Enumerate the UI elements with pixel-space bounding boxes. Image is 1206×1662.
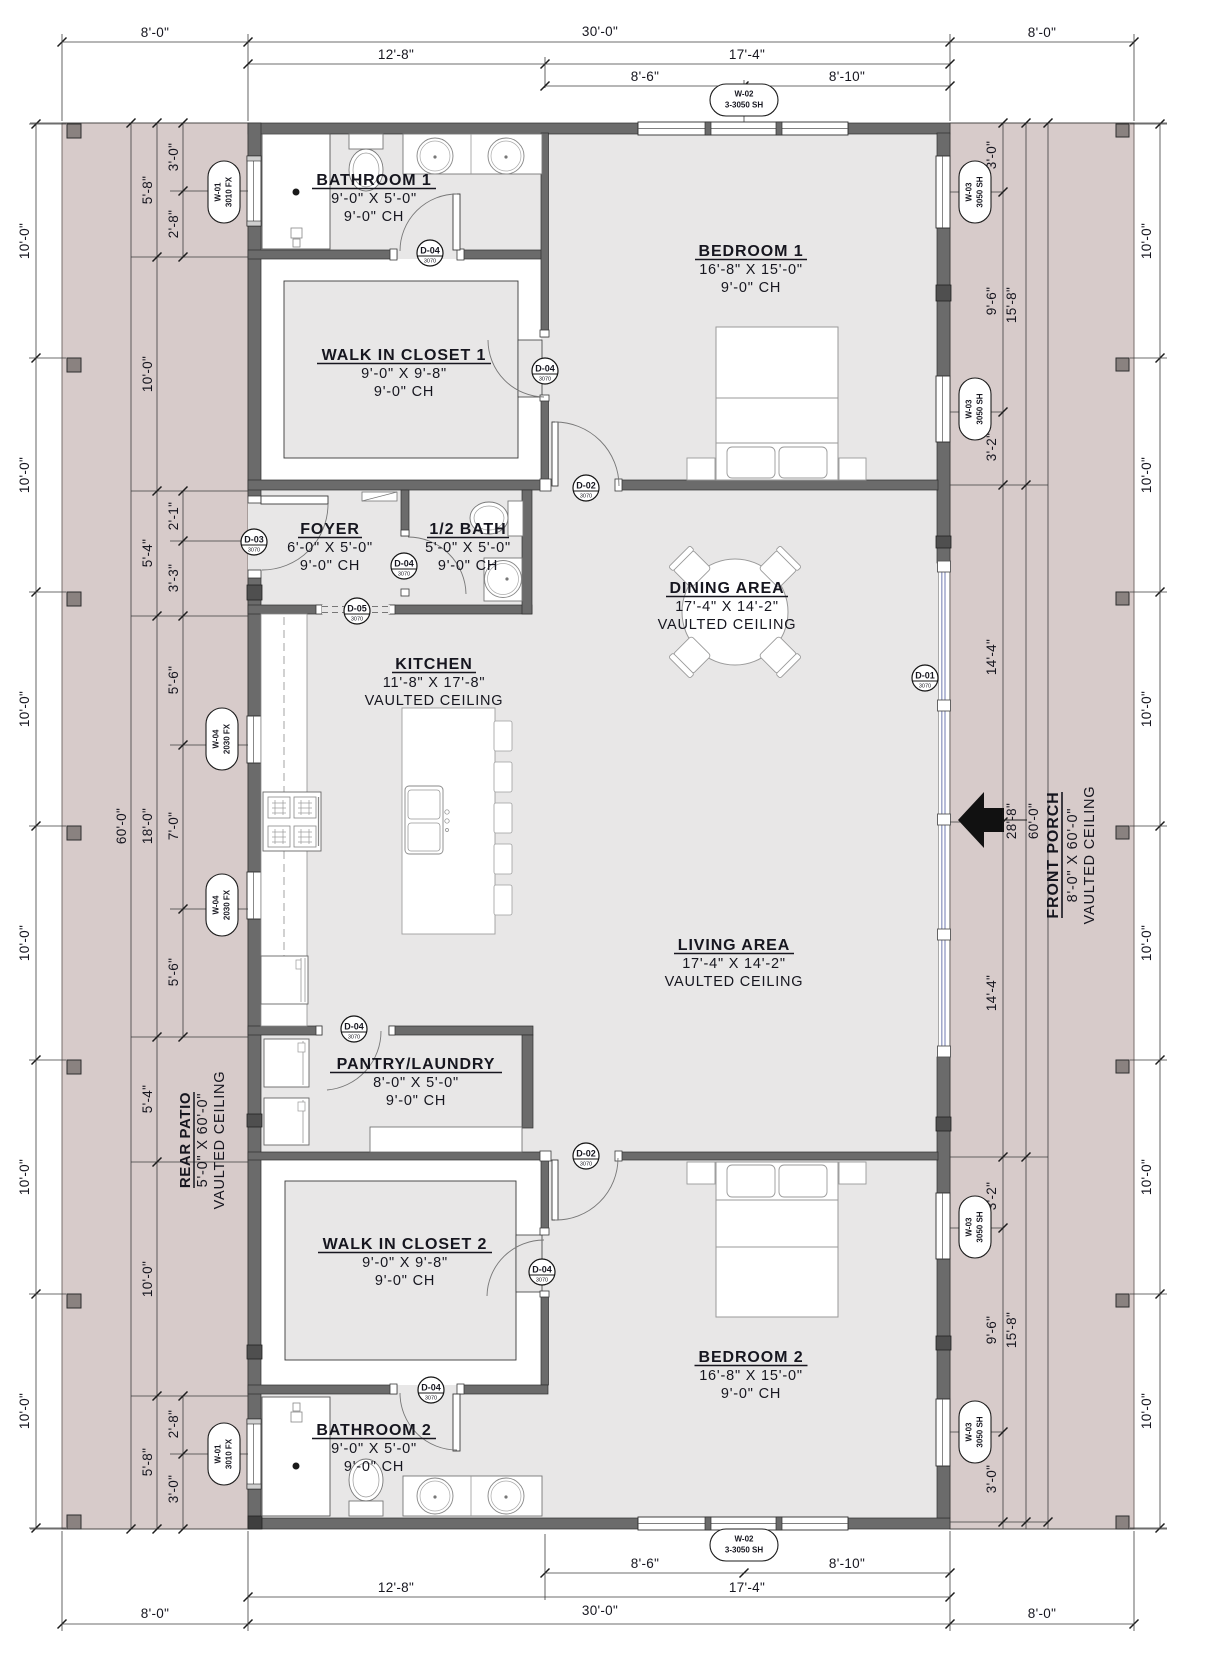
svg-text:8'-0": 8'-0" [141,1606,169,1621]
svg-text:3'-0": 3'-0" [166,143,181,171]
svg-text:FOYER: FOYER [300,521,360,538]
svg-text:BATHROOM 1: BATHROOM 1 [316,172,431,189]
svg-text:10'-0": 10'-0" [17,1159,32,1195]
svg-text:2'-8": 2'-8" [166,1410,181,1438]
svg-text:10'-0": 10'-0" [17,691,32,727]
svg-text:8'-0": 8'-0" [1028,1606,1056,1621]
svg-text:14'-4": 14'-4" [984,975,999,1011]
svg-text:3070: 3070 [398,572,410,578]
svg-text:3'-0": 3'-0" [166,1475,181,1503]
svg-text:9'-0" CH: 9'-0" CH [438,558,498,574]
svg-text:D-02: D-02 [576,481,596,491]
svg-text:3050 SH: 3050 SH [976,1416,985,1447]
svg-text:VAULTED CEILING: VAULTED CEILING [665,974,804,990]
svg-text:W-02: W-02 [735,1535,755,1544]
svg-text:D-03: D-03 [244,535,264,545]
svg-text:8'-10": 8'-10" [829,1556,865,1571]
svg-text:3050 SH: 3050 SH [976,1211,985,1242]
svg-text:WALK IN CLOSET 1: WALK IN CLOSET 1 [322,347,487,364]
svg-text:LIVING AREA: LIVING AREA [678,937,790,954]
svg-text:9'-0" CH: 9'-0" CH [721,1386,781,1402]
svg-text:8'-0": 8'-0" [1028,25,1056,40]
svg-text:3070: 3070 [539,377,551,383]
svg-text:3050 SH: 3050 SH [976,176,985,207]
svg-text:15'-8": 15'-8" [1004,1312,1019,1348]
svg-text:3070: 3070 [351,617,363,623]
svg-text:17'-4" X 14'-2": 17'-4" X 14'-2" [675,599,779,615]
svg-text:10'-0": 10'-0" [1139,1159,1154,1195]
svg-text:28'-8": 28'-8" [1004,803,1019,839]
svg-text:1/2 BATH: 1/2 BATH [429,521,506,538]
svg-text:2030 FX: 2030 FX [223,723,232,754]
svg-text:9'-6": 9'-6" [984,1316,999,1344]
svg-text:3070: 3070 [425,1396,437,1402]
svg-text:DINING AREA: DINING AREA [669,580,784,597]
svg-text:9'-0" CH: 9'-0" CH [374,384,434,400]
svg-text:7'-0": 7'-0" [166,812,181,840]
svg-text:W-01: W-01 [214,182,223,202]
svg-text:3010 FX: 3010 FX [225,1438,234,1469]
svg-text:3'-3": 3'-3" [166,564,181,592]
svg-text:11'-8" X 17'-8": 11'-8" X 17'-8" [383,675,486,691]
svg-text:17'-4": 17'-4" [729,1580,765,1595]
svg-text:5'-8": 5'-8" [140,1448,155,1476]
svg-text:VAULTED CEILING: VAULTED CEILING [365,693,504,709]
svg-text:VAULTED CEILING: VAULTED CEILING [1082,786,1098,925]
svg-text:3'-0": 3'-0" [984,1465,999,1493]
svg-text:8'-0" X 60'-0": 8'-0" X 60'-0" [1065,808,1081,903]
svg-text:60'-0": 60'-0" [1026,803,1041,839]
svg-text:3070: 3070 [248,548,260,554]
svg-text:BEDROOM 2: BEDROOM 2 [699,1349,804,1366]
svg-text:6'-0" X 5'-0": 6'-0" X 5'-0" [287,540,373,556]
svg-text:3070: 3070 [580,494,592,500]
svg-text:D-02: D-02 [576,1149,596,1159]
svg-text:5'-6": 5'-6" [166,666,181,694]
svg-text:VAULTED CEILING: VAULTED CEILING [658,617,797,633]
svg-text:FRONT PORCH: FRONT PORCH [1045,791,1062,918]
svg-text:8'-0" X 5'-0": 8'-0" X 5'-0" [373,1075,459,1091]
svg-text:10'-0": 10'-0" [140,356,155,392]
svg-text:3-3050 SH: 3-3050 SH [725,1546,763,1555]
svg-text:W-03: W-03 [965,399,974,419]
svg-text:3010 FX: 3010 FX [225,176,234,207]
svg-text:5'-4": 5'-4" [140,1085,155,1113]
svg-text:2'-8": 2'-8" [166,210,181,238]
svg-text:2'-1": 2'-1" [166,502,181,530]
svg-text:W-04: W-04 [212,729,221,749]
svg-text:30'-0": 30'-0" [582,24,618,39]
svg-text:W-03: W-03 [965,1422,974,1442]
svg-text:9'-6": 9'-6" [984,287,999,315]
svg-text:8'-10": 8'-10" [829,69,865,84]
svg-text:8'-6": 8'-6" [631,1556,659,1571]
svg-text:12'-8": 12'-8" [378,1580,414,1595]
svg-text:3070: 3070 [580,1162,592,1168]
svg-text:D-04: D-04 [532,1265,552,1275]
svg-text:9'-0" CH: 9'-0" CH [344,209,404,225]
svg-text:10'-0": 10'-0" [17,925,32,961]
svg-text:10'-0": 10'-0" [1139,223,1154,259]
svg-text:W-03: W-03 [965,182,974,202]
svg-text:10'-0": 10'-0" [1139,1393,1154,1429]
svg-text:10'-0": 10'-0" [1139,925,1154,961]
svg-text:W-02: W-02 [735,90,755,99]
svg-text:60'-0": 60'-0" [114,808,129,844]
svg-text:3-3050 SH: 3-3050 SH [725,101,763,110]
svg-text:9'-0" CH: 9'-0" CH [300,558,360,574]
svg-text:17'-4": 17'-4" [729,47,765,62]
svg-text:5'-0" X 60'-0": 5'-0" X 60'-0" [195,1093,211,1188]
svg-text:VAULTED CEILING: VAULTED CEILING [212,1071,228,1210]
svg-text:16'-8" X 15'-0": 16'-8" X 15'-0" [699,262,803,278]
svg-text:18'-0": 18'-0" [140,808,155,844]
svg-text:10'-0": 10'-0" [140,1261,155,1297]
svg-text:9'-0" X 5'-0": 9'-0" X 5'-0" [331,1441,417,1457]
svg-text:14'-4": 14'-4" [984,639,999,675]
svg-text:5'-4": 5'-4" [140,539,155,567]
svg-text:BEDROOM 1: BEDROOM 1 [699,243,804,260]
svg-text:D-04: D-04 [535,364,555,374]
svg-text:3070: 3070 [919,684,931,690]
svg-text:D-05: D-05 [347,604,367,614]
svg-text:9'-0" X 9'-8": 9'-0" X 9'-8" [362,1255,448,1271]
svg-text:REAR PATIO: REAR PATIO [177,1092,194,1188]
svg-text:10'-0": 10'-0" [1139,691,1154,727]
svg-text:3070: 3070 [424,259,436,265]
svg-text:2030 FX: 2030 FX [223,889,232,920]
svg-text:3070: 3070 [348,1035,360,1041]
svg-text:W-04: W-04 [212,895,221,915]
svg-text:KITCHEN: KITCHEN [395,656,472,673]
svg-text:D-04: D-04 [420,246,440,256]
svg-text:9'-0" CH: 9'-0" CH [375,1273,435,1289]
svg-text:5'-6": 5'-6" [166,958,181,986]
svg-text:5'-0" X 5'-0": 5'-0" X 5'-0" [425,540,511,556]
svg-text:10'-0": 10'-0" [17,223,32,259]
svg-text:W-01: W-01 [214,1444,223,1464]
svg-text:10'-0": 10'-0" [17,1393,32,1429]
svg-text:9'-0" X 9'-8": 9'-0" X 9'-8" [361,366,447,382]
svg-text:10'-0": 10'-0" [1139,457,1154,493]
svg-text:9'-0" X 5'-0": 9'-0" X 5'-0" [331,191,417,207]
svg-text:8'-6": 8'-6" [631,69,659,84]
svg-text:12'-8": 12'-8" [378,47,414,62]
svg-text:9'-0" CH: 9'-0" CH [386,1093,446,1109]
svg-text:9'-0" CH: 9'-0" CH [721,280,781,296]
svg-text:16'-8" X 15'-0": 16'-8" X 15'-0" [699,1368,803,1384]
svg-text:15'-8": 15'-8" [1004,287,1019,323]
svg-text:8'-0": 8'-0" [141,25,169,40]
svg-text:30'-0": 30'-0" [582,1603,618,1618]
svg-text:D-04: D-04 [344,1022,364,1032]
svg-text:BATHROOM 2: BATHROOM 2 [316,1422,431,1439]
svg-text:17'-4" X 14'-2": 17'-4" X 14'-2" [682,956,786,972]
svg-text:3050 SH: 3050 SH [976,393,985,424]
svg-text:5'-8": 5'-8" [140,176,155,204]
svg-text:3070: 3070 [536,1278,548,1284]
svg-text:3'-2": 3'-2" [984,433,999,461]
svg-text:10'-0": 10'-0" [17,457,32,493]
svg-text:PANTRY/LAUNDRY: PANTRY/LAUNDRY [337,1056,496,1073]
svg-text:D-04: D-04 [421,1383,441,1393]
svg-text:D-01: D-01 [915,671,935,681]
svg-text:WALK IN CLOSET 2: WALK IN CLOSET 2 [323,1236,488,1253]
svg-text:9'-0" CH: 9'-0" CH [344,1459,404,1475]
svg-text:W-03: W-03 [965,1217,974,1237]
svg-text:D-04: D-04 [394,559,414,569]
